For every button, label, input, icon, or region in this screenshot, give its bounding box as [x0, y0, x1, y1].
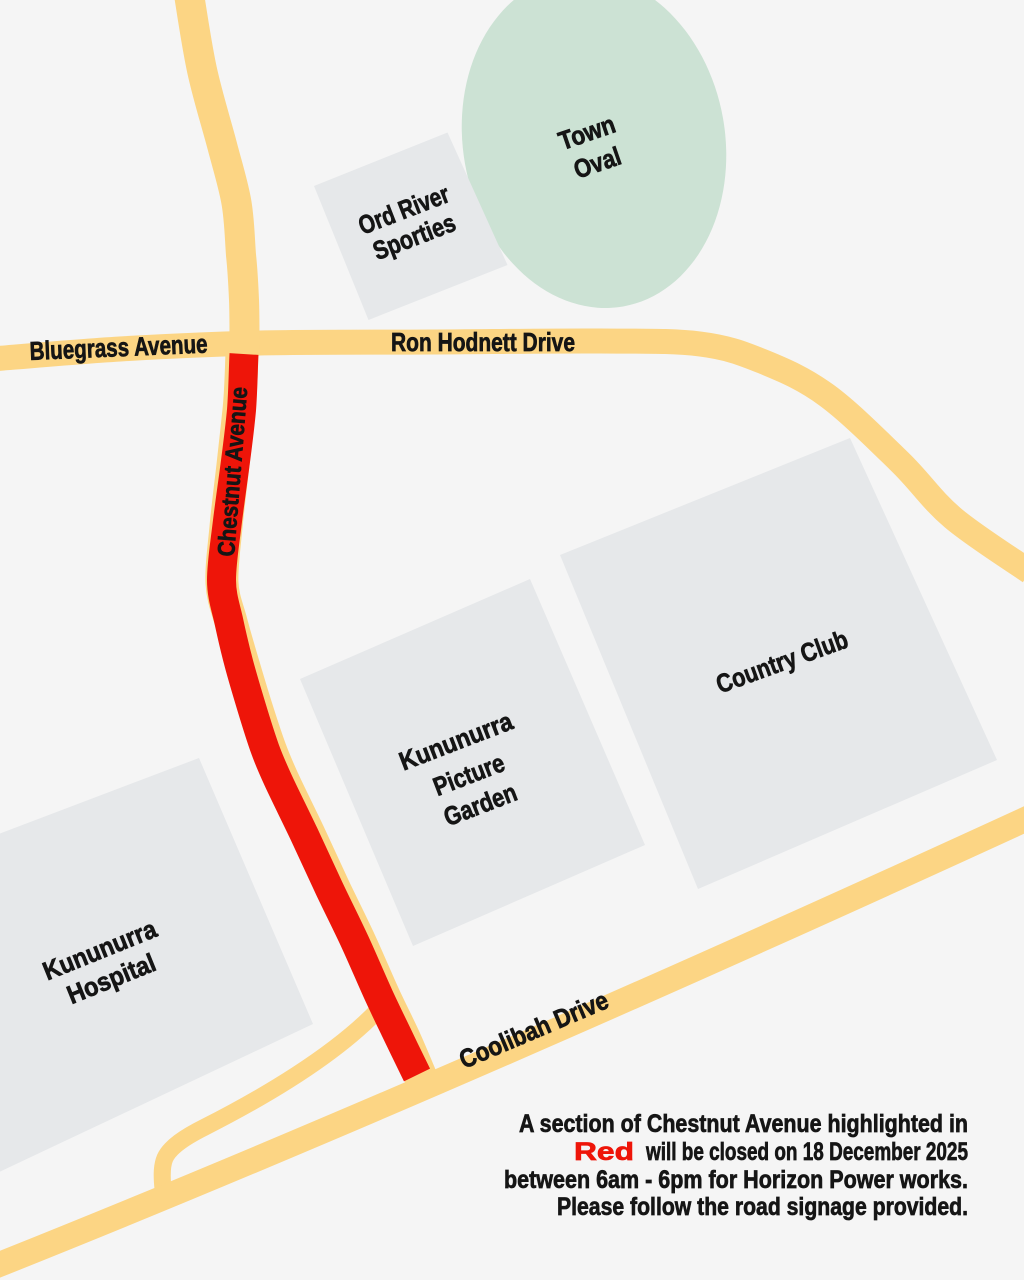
svg-text:Ron Hodnett Drive: Ron Hodnett Drive: [391, 327, 575, 357]
svg-text:between 6am - 6pm for Horizon: between 6am - 6pm for Horizon Power work…: [504, 1166, 968, 1194]
svg-text:Red: Red: [574, 1138, 634, 1166]
svg-text:A section of Chestnut Avenue: A section of Chestnut Avenue highlighted…: [519, 1110, 968, 1138]
svg-text:will be closed on 18 December: will be closed on 18 December 2025: [645, 1138, 968, 1166]
svg-text:Please follow the road signage: Please follow the road signage provided.: [557, 1193, 968, 1221]
